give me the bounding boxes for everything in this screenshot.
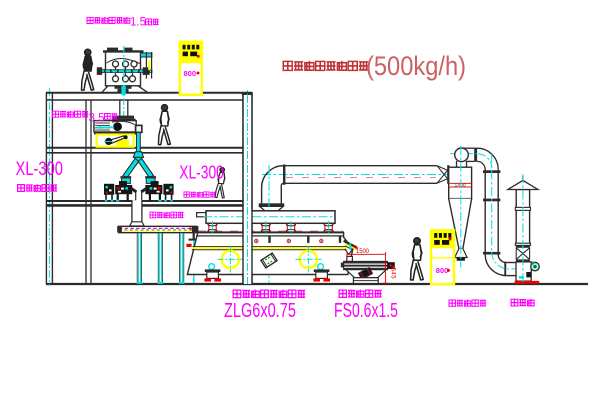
svg-text:3.5: 3.5 xyxy=(89,113,105,125)
svg-text:800: 800 xyxy=(184,69,197,78)
svg-text:800: 800 xyxy=(436,266,449,275)
svg-text:545: 545 xyxy=(390,268,396,280)
svg-text:ZLG6x0.75: ZLG6x0.75 xyxy=(224,300,296,322)
svg-text:XL-300: XL-300 xyxy=(16,159,64,180)
svg-text:1500: 1500 xyxy=(356,249,370,255)
svg-text:(500kg/h): (500kg/h) xyxy=(366,51,466,81)
svg-text:XL-300: XL-300 xyxy=(179,163,224,183)
svg-text:1.5: 1.5 xyxy=(130,17,146,29)
svg-text:FS0.6x1.5: FS0.6x1.5 xyxy=(334,300,398,322)
